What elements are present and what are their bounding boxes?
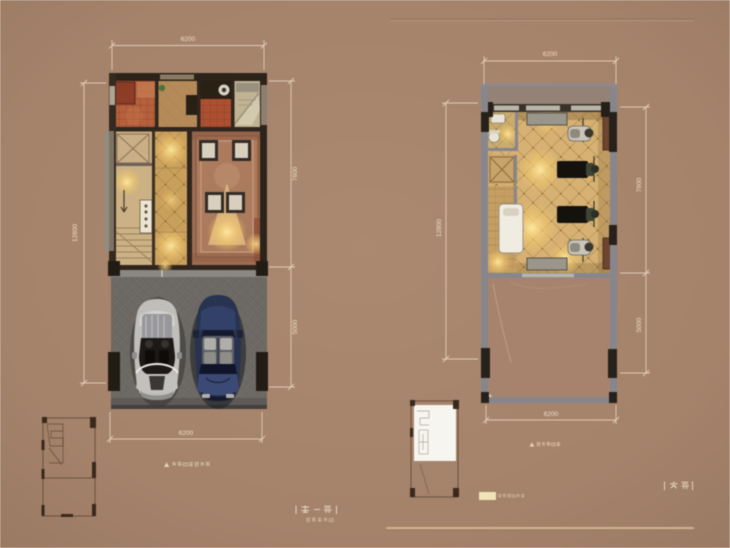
svg-text:7600: 7600 <box>292 166 299 181</box>
svg-text:6200: 6200 <box>543 51 558 58</box>
svg-text:12800: 12800 <box>72 224 79 242</box>
svg-text:5000: 5000 <box>292 319 299 334</box>
svg-text:6200: 6200 <box>181 36 196 43</box>
svg-text:12800: 12800 <box>436 219 443 237</box>
svg-text:5000: 5000 <box>636 317 643 332</box>
svg-text:7600: 7600 <box>636 177 643 192</box>
svg-text:6200: 6200 <box>544 411 559 418</box>
svg-text:6200: 6200 <box>179 430 194 437</box>
